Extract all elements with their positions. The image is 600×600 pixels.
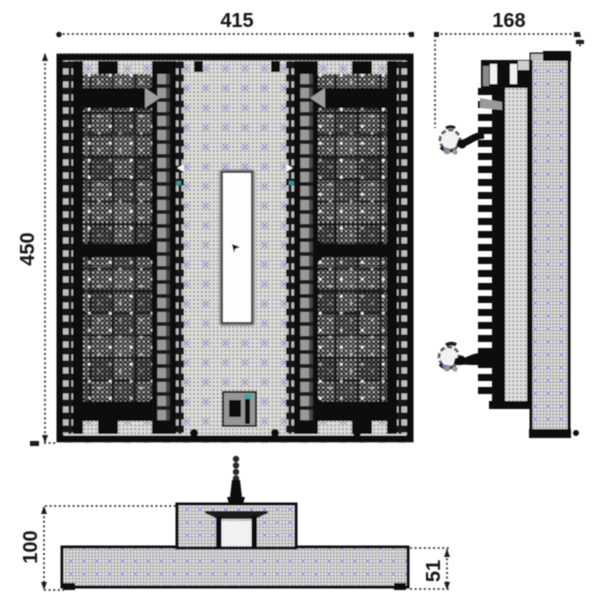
svg-text:450: 450 [17, 232, 39, 265]
svg-text:168: 168 [492, 10, 525, 32]
svg-text:51: 51 [423, 560, 445, 582]
svg-text:100: 100 [20, 530, 42, 563]
svg-text:415: 415 [220, 10, 253, 32]
